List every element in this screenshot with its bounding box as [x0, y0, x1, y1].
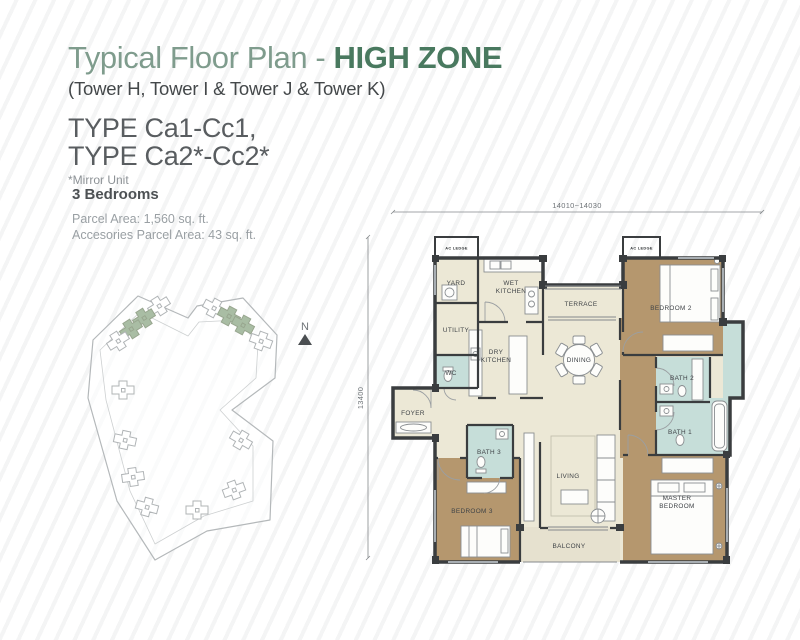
north-arrow-icon	[298, 334, 312, 345]
dimension-top-label: 14010~14030	[552, 201, 601, 210]
unit-type-line-1: TYPE Ca1-Cc1,	[68, 114, 508, 142]
room-label-bedroom-2: BEDROOM 2	[650, 305, 692, 312]
room-label-bath-3: BATH 3	[477, 449, 501, 456]
site-key-plan: N	[70, 288, 316, 588]
room-label-dining: DINING	[567, 357, 591, 364]
wardrobe-bedroom-3	[467, 482, 506, 493]
ac-ledge-left-label: AC LEDGE	[445, 246, 468, 251]
unit-types: TYPE Ca1-Cc1, TYPE Ca2*-Cc2*	[68, 114, 508, 170]
room-label-bath-2: BATH 2	[670, 375, 694, 382]
wardrobe-bedroom-2	[663, 335, 713, 351]
bedroom-count: 3 Bedrooms	[72, 186, 256, 203]
header: Typical Floor Plan - HIGH ZONE (Tower H,…	[68, 40, 508, 187]
dimension-left-label: 13400	[356, 387, 365, 409]
room-label-living: LIVING	[556, 473, 579, 480]
room-label-bath-1: BATH 1	[668, 429, 692, 436]
parcel-area: Parcel Area: 1,560 sq. ft.	[72, 212, 256, 228]
page-title: Typical Floor Plan - HIGH ZONE	[68, 40, 508, 76]
page-title-zone: HIGH ZONE	[334, 40, 503, 75]
room-label-balcony: BALCONY	[553, 543, 586, 550]
bed-bedroom-3	[461, 526, 510, 557]
room-label-terrace: TERRACE	[565, 301, 598, 308]
dimension-left: 13400	[356, 235, 370, 560]
ac-ledges: AC LEDGE AC LEDGE	[435, 237, 660, 258]
unit-details: 3 Bedrooms Parcel Area: 1,560 sq. ft. Ac…	[72, 186, 256, 243]
room-label-foyer: FOYER	[401, 410, 425, 417]
unit-type-line-2: TYPE Ca2*-Cc2*	[68, 142, 508, 170]
wardrobe-master	[662, 458, 713, 473]
north-arrow-label: N	[301, 321, 309, 333]
bed-master	[651, 480, 722, 554]
washer-yard	[442, 285, 457, 300]
parcel-areas: Parcel Area: 1,560 sq. ft. Accesories Pa…	[72, 212, 256, 243]
north-arrow: N	[298, 321, 312, 345]
floor-service-ledge	[723, 322, 743, 398]
page-title-regular: Typical Floor Plan -	[68, 40, 334, 75]
room-label-wc: WC	[445, 370, 456, 377]
accessories-parcel-area: Accesories Parcel Area: 43 sq. ft.	[72, 228, 256, 244]
foyer-cabinet	[396, 422, 431, 433]
floor-plan-drawing: 14010~14030 13400 AC LEDGE AC LEDGE	[348, 190, 778, 570]
room-label-bedroom-3: BEDROOM 3	[451, 508, 493, 515]
room-label-utility: UTILITY	[443, 327, 470, 334]
ac-ledge-right-label: AC LEDGE	[630, 246, 653, 251]
towers-subtitle: (Tower H, Tower I & Tower J & Tower K)	[68, 78, 508, 100]
room-label-yard: YARD	[447, 280, 466, 287]
floor-corridor	[620, 318, 656, 458]
room-label-master-bedroom: MASTERBEDROOM	[659, 495, 694, 510]
dimension-top: 14010~14030	[391, 201, 764, 214]
bed-bedroom-2	[660, 259, 720, 323]
floor-plan-page: Typical Floor Plan - HIGH ZONE (Tower H,…	[0, 0, 800, 640]
